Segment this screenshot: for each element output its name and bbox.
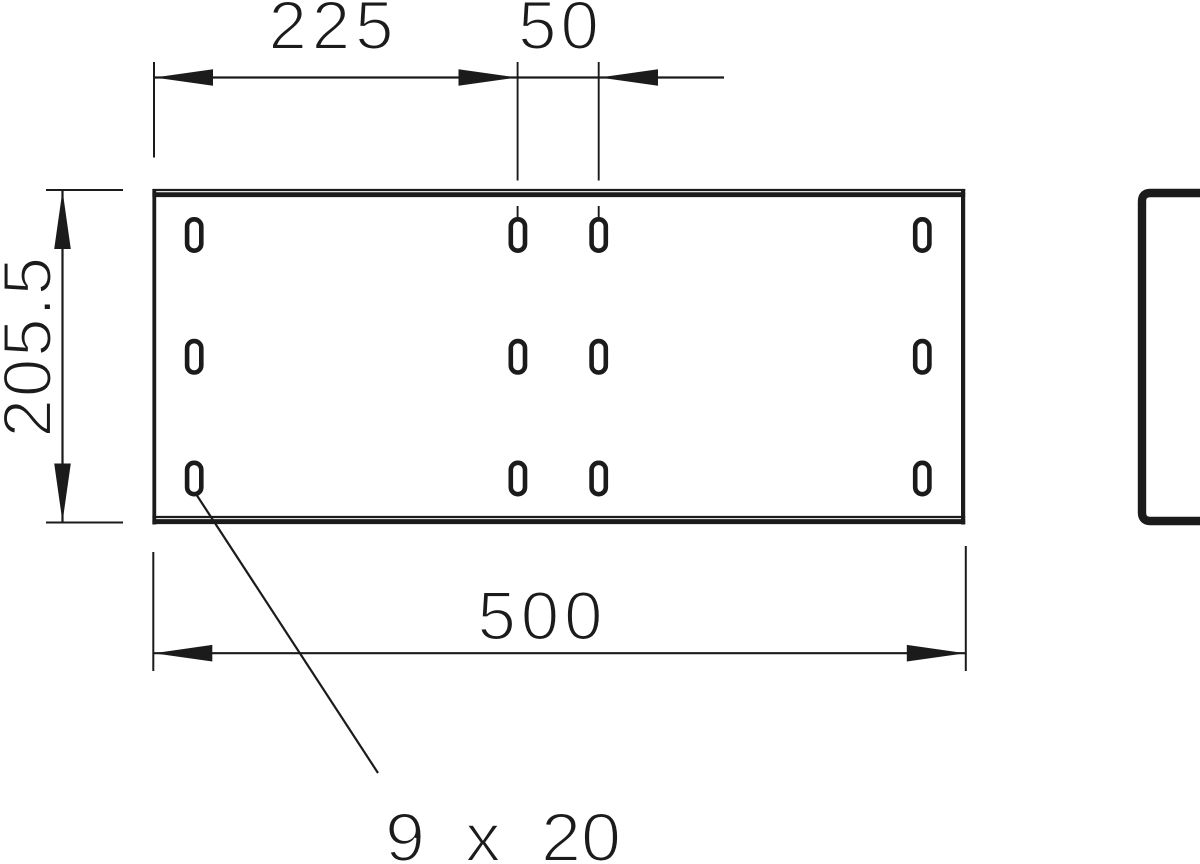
svg-text:50: 50 [518, 0, 603, 64]
svg-text:9 x 20: 9 x 20 [385, 799, 621, 864]
svg-text:500: 500 [477, 578, 607, 655]
svg-text:225: 225 [268, 0, 398, 64]
svg-text:205.5: 205.5 [0, 255, 66, 438]
